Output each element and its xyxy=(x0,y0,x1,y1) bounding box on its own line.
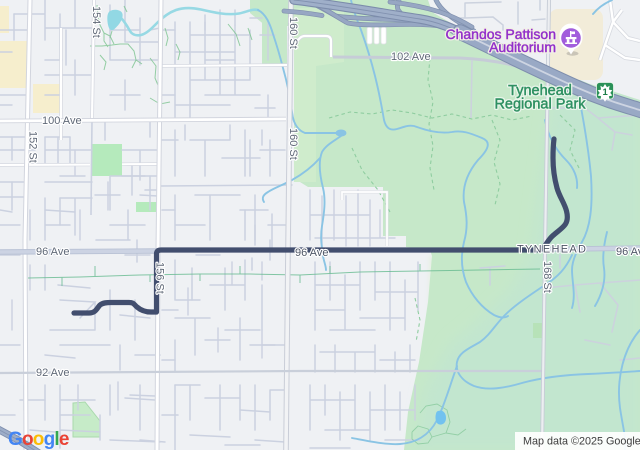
svg-text:102 Ave: 102 Ave xyxy=(391,51,431,63)
svg-text:92 Ave: 92 Ave xyxy=(36,367,69,379)
svg-text:160 St: 160 St xyxy=(287,128,299,160)
svg-text:Google: Google xyxy=(8,429,69,450)
svg-text:Auditorium: Auditorium xyxy=(489,39,556,55)
svg-text:100 Ave: 100 Ave xyxy=(42,115,82,127)
svg-text:TYNEHEAD: TYNEHEAD xyxy=(517,244,587,256)
svg-text:96 Ave: 96 Ave xyxy=(295,247,328,259)
svg-text:Regional Park: Regional Park xyxy=(494,97,586,113)
svg-text:156 St: 156 St xyxy=(154,262,166,294)
svg-text:152 St: 152 St xyxy=(27,131,39,163)
svg-text:96 Ave: 96 Ave xyxy=(36,246,69,258)
svg-text:160 St: 160 St xyxy=(287,17,299,49)
svg-text:154 St: 154 St xyxy=(90,6,102,38)
svg-text:96 Ave: 96 Ave xyxy=(616,246,640,258)
svg-text:168 St: 168 St xyxy=(541,261,553,293)
svg-text:1: 1 xyxy=(603,87,609,98)
svg-text:Map data ©2025 Google: Map data ©2025 Google xyxy=(523,436,640,448)
